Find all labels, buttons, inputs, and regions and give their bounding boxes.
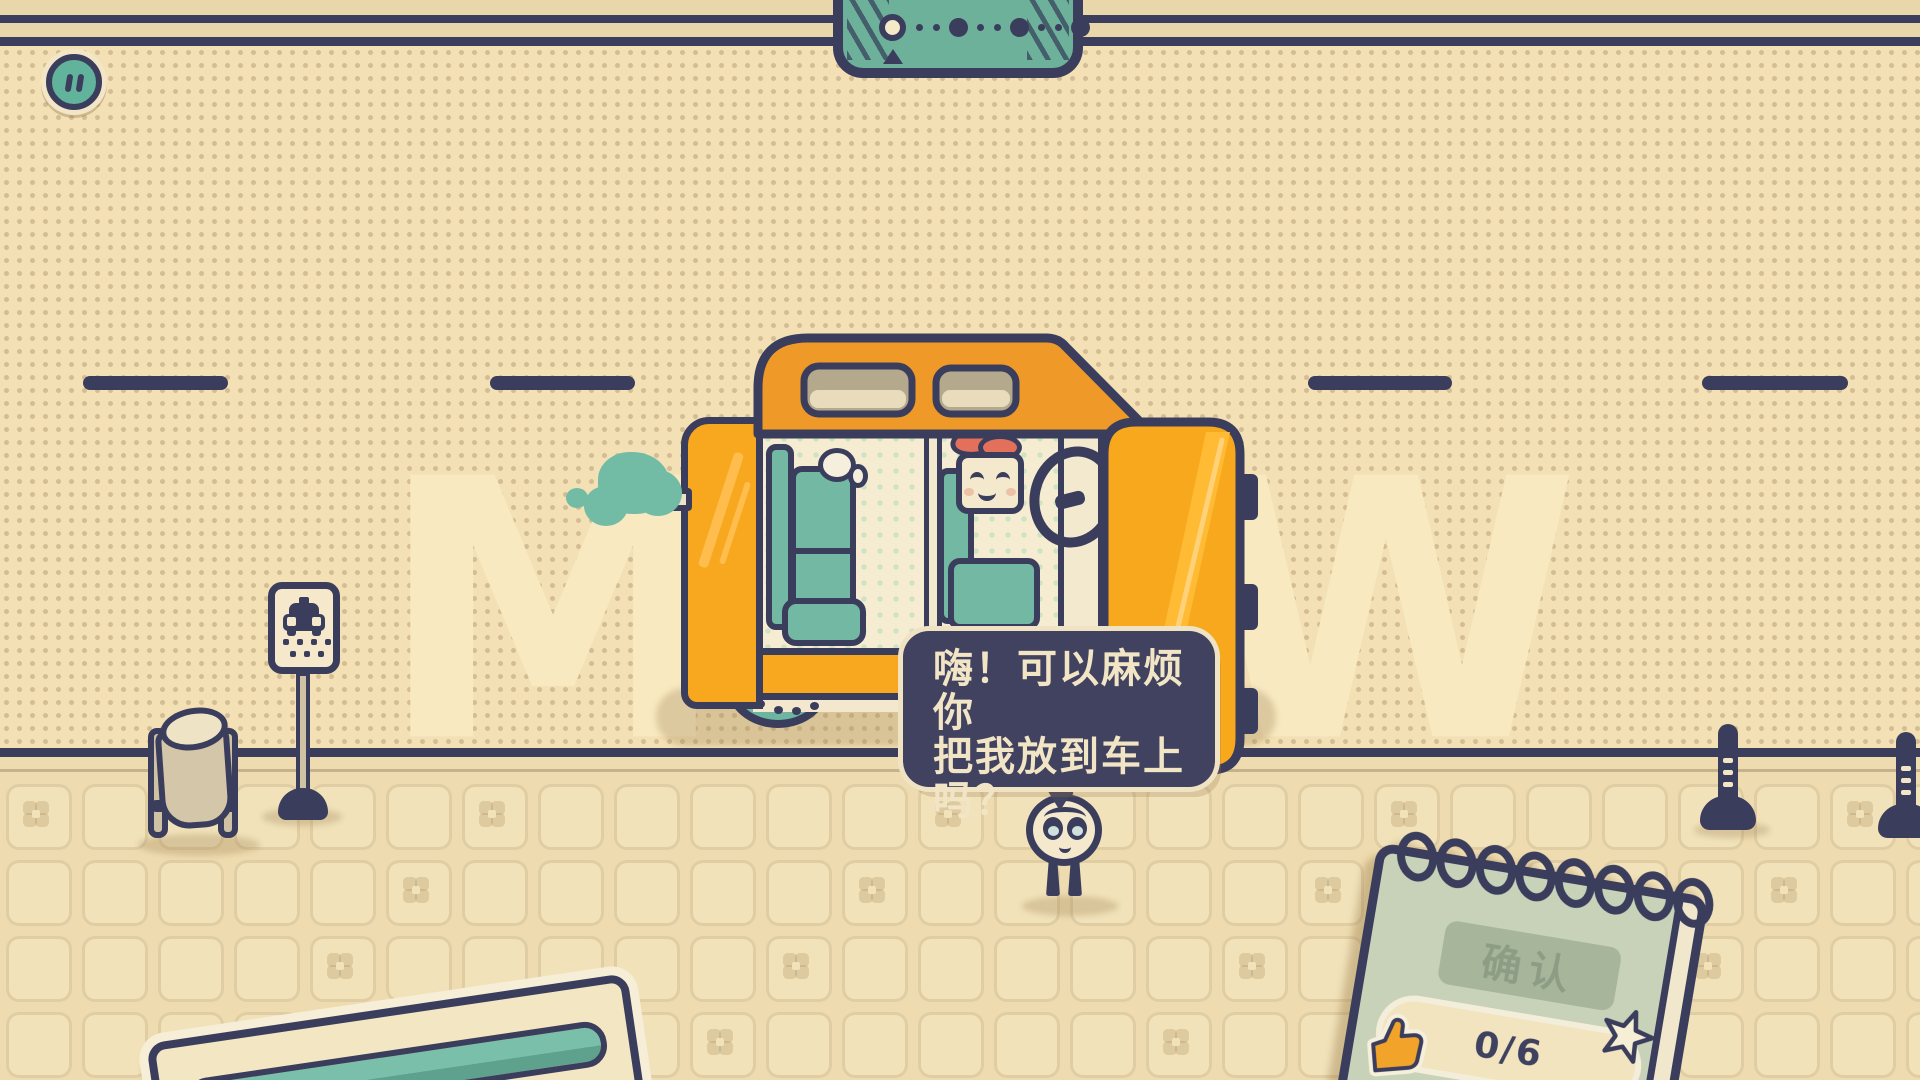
sidewalk-tile [842,936,908,1002]
sidewalk-tile [766,1012,832,1078]
pause-icon [46,54,102,110]
sidewalk-tile [842,784,908,850]
sidewalk-tile [766,860,832,926]
sidewalk-tile [1906,1012,1920,1078]
thumbs-up-icon [1352,1004,1438,1080]
order-pad: 确认 0/6 [1319,842,1710,1080]
sidewalk-tile [690,1012,756,1078]
sidewalk-tile [766,936,832,1002]
dialogue-line: 嗨！可以麻烦你 [933,647,1205,735]
sidewalk-tile [994,1012,1060,1078]
sidewalk-tile [1222,860,1288,926]
mini-dot [933,24,940,31]
route-progress-panel [833,0,1083,78]
bollard [1718,724,1738,820]
sidewalk-tile [6,1012,72,1078]
sidewalk-tile [310,936,376,1002]
sidewalk-tile [1298,784,1364,850]
game-viewport: M W [0,0,1920,1080]
sidewalk-tile [1222,784,1288,850]
sidewalk-tile [1298,860,1364,926]
sidewalk-tile [1906,860,1920,926]
sidewalk-tile [386,936,452,1002]
sidewalk-tile [158,936,224,1002]
taxi-icon-body [283,614,325,631]
driver-face [956,452,1024,514]
couch-armrest [782,598,866,646]
sidewalk-tile [386,784,452,850]
sidewalk-tile [918,860,984,926]
sidewalk-tile [690,860,756,926]
sidewalk-tile [918,1012,984,1078]
sidewalk-tile [1526,784,1592,850]
sidewalk-tile [1602,784,1668,850]
sidewalk-tile [1070,936,1136,1002]
sidewalk-tile [234,936,300,1002]
sidewalk-tile [690,784,756,850]
sidewalk-tile [234,860,300,926]
exhaust-smoke [584,486,628,526]
sidewalk-tile [6,784,72,850]
taxi-stop-sign [268,582,340,674]
sidewalk-tile [82,784,148,850]
sidewalk-tile [538,784,604,850]
sidewalk-tile [310,860,376,926]
sidewalk-tile [766,784,832,850]
mini-dot [977,24,984,31]
taxi-icon-wheel [312,630,321,636]
van-rear-panel [681,417,763,709]
route-progress-track [879,14,1094,41]
sidewalk-tile [82,936,148,1002]
mini-dot [916,24,923,31]
taxi-icon-wheel [287,630,296,636]
sidewalk-tile [1754,936,1820,1002]
mini-dot [994,24,1001,31]
stop-dot [1010,18,1029,37]
wheel-hub-dot [792,707,801,715]
glove-thumb [848,464,868,488]
taxi-sign-pole [296,672,310,798]
mini-dot [1055,24,1062,31]
mini-dot [1038,24,1045,31]
passenger-shadow [1022,896,1118,916]
sidewalk-tile [690,936,756,1002]
sidewalk-tile [1906,936,1920,1002]
progress-counter: 0/6 [1471,1023,1546,1075]
bollard [1896,732,1916,828]
sidewalk-tile [1830,860,1896,926]
paper-row [184,1019,610,1080]
wheel-hub-dot [810,702,819,710]
exhaust-smoke [634,470,682,516]
lane-dash [490,376,635,390]
current-stop-marker [879,14,906,41]
exhaust-smoke-puff [566,488,588,508]
sidewalk-tile [82,1012,148,1078]
sidewalk-tile [1222,1012,1288,1078]
sidewalk-tile [918,936,984,1002]
sidewalk-tile [1146,936,1212,1002]
lane-dash [83,376,228,390]
sidewalk-tile [994,936,1060,1002]
sidewalk-tile [1754,860,1820,926]
dialogue-line: 吗？ [933,779,1205,823]
sidewalk-tile [1830,936,1896,1002]
sidewalk-tile [1070,1012,1136,1078]
lane-dash [1702,376,1848,390]
sidewalk-tile [6,860,72,926]
sidewalk-tile [842,860,908,926]
sidewalk-tile [1830,1012,1896,1078]
sidewalk-tile [82,860,148,926]
sidewalk-tile [386,860,452,926]
sidewalk-tile [1754,784,1820,850]
speech-bubble: 嗨！可以麻烦你 把我放到车上 吗？ [903,631,1215,787]
sidewalk-tile [614,860,680,926]
wheel-hub-dot [774,706,783,714]
sidewalk-tile [462,860,528,926]
sidewalk-tile [1222,936,1288,1002]
dialogue-line: 把我放到车上 [933,735,1205,779]
stop-dot [1071,18,1090,37]
sidewalk-tile [842,1012,908,1078]
sidewalk-tile [1754,1012,1820,1078]
sidewalk-tile [158,860,224,926]
sidewalk-tile [1146,1012,1212,1078]
sidewalk-tile [1146,860,1212,926]
pause-button[interactable] [41,49,107,115]
sidewalk-tile [614,784,680,850]
confirm-label: 确认 [1478,929,1582,1002]
driver-seat-bottom [948,558,1040,630]
lane-dash [1308,376,1452,390]
sidewalk-tile [462,784,528,850]
sidewalk-tile [538,860,604,926]
stop-dot [949,18,968,37]
sidewalk-tile [6,936,72,1002]
